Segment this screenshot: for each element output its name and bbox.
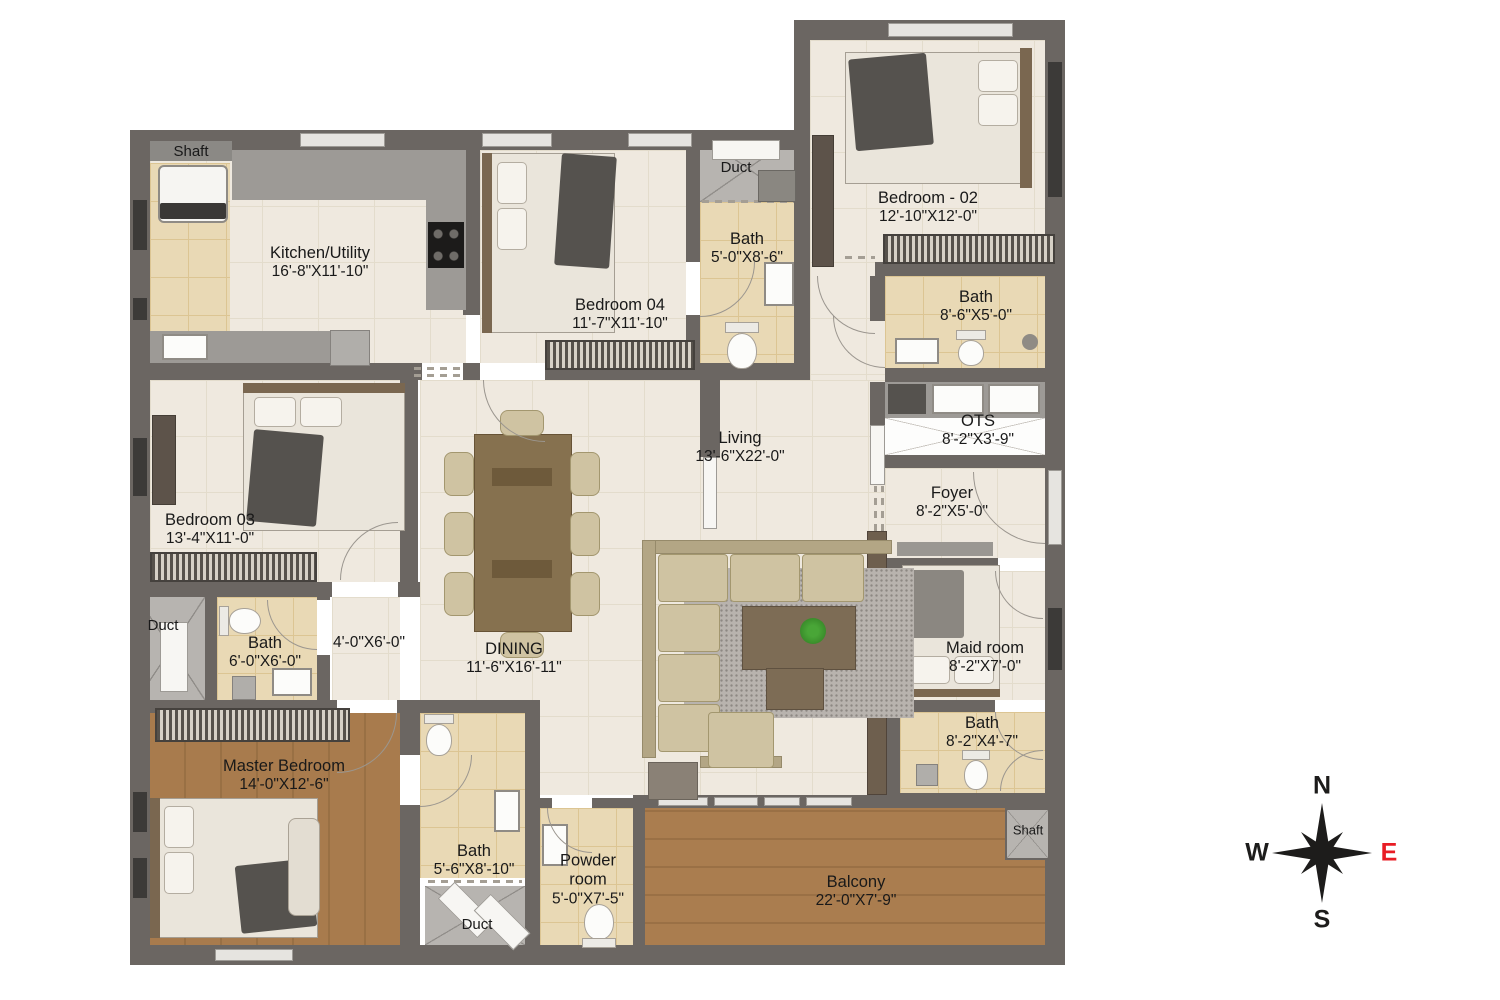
window bbox=[482, 133, 552, 147]
water-heater-band bbox=[160, 203, 226, 219]
window bbox=[215, 949, 293, 961]
pillow bbox=[910, 656, 950, 684]
room-label-shaft-balcony: Shaft bbox=[1013, 822, 1043, 837]
blanket bbox=[554, 153, 617, 269]
toilet-icon bbox=[229, 608, 261, 634]
duct-shelf bbox=[712, 140, 780, 160]
sofa-cushion bbox=[730, 554, 800, 602]
toilet-icon bbox=[584, 904, 614, 940]
dining-chair bbox=[444, 452, 474, 496]
window bbox=[300, 133, 385, 147]
window bbox=[133, 858, 147, 898]
room-label-bath-master: Bath5'-6"X8'-10" bbox=[434, 842, 515, 880]
room-label-living: Living13'-6"X22'-0" bbox=[695, 429, 784, 467]
sofa-cushion bbox=[658, 554, 728, 602]
dining-runner bbox=[492, 560, 552, 578]
wall-outer-top-left bbox=[130, 130, 810, 150]
dining-chair bbox=[444, 512, 474, 556]
window bbox=[714, 797, 758, 806]
tv-console-bedroom-03 bbox=[152, 415, 176, 505]
window bbox=[888, 23, 1013, 37]
window bbox=[133, 200, 147, 250]
toilet-icon bbox=[964, 760, 988, 790]
wardrobe-bedroom-02 bbox=[883, 234, 1055, 264]
room-label-shaft-top: Shaft bbox=[173, 143, 208, 161]
duct-dark-box bbox=[758, 170, 796, 202]
plant-icon bbox=[800, 618, 826, 644]
room-label-foyer: Foyer8'-2"X5'-0" bbox=[916, 484, 988, 522]
room-label-kitchen: Kitchen/Utility16'-8"X11'-10" bbox=[270, 244, 370, 282]
room-label-bath-top: Bath5'-0"X8'-6" bbox=[711, 230, 783, 268]
room-label-passage: 4'-0"X6'-0" bbox=[333, 634, 405, 652]
toilet-icon bbox=[426, 724, 452, 756]
headboard bbox=[482, 153, 492, 333]
room-label-bath-6x6: Bath6'-0"X6'-0" bbox=[229, 634, 301, 672]
blanket bbox=[848, 53, 934, 151]
shower-tray bbox=[272, 668, 312, 696]
sofa-cushion bbox=[802, 554, 864, 602]
headboard bbox=[902, 689, 1000, 697]
headboard bbox=[150, 798, 160, 938]
room-label-bedroom-04: Bedroom 0411'-7"X11'-10" bbox=[572, 296, 668, 334]
ots-dark-box bbox=[888, 384, 926, 414]
pillow bbox=[300, 397, 342, 427]
sofa-back-left bbox=[642, 540, 656, 758]
coffee-table-ext bbox=[766, 668, 824, 710]
toilet-tank bbox=[424, 714, 454, 724]
dining-chair bbox=[570, 452, 600, 496]
vanity bbox=[895, 338, 939, 364]
opening-kitchen-dining bbox=[414, 367, 462, 370]
sofa-cushion bbox=[658, 604, 720, 652]
compass-west: W bbox=[1245, 839, 1269, 868]
wall-bath-corridor bbox=[794, 150, 810, 380]
wall-bed02-south bbox=[875, 262, 1065, 276]
opening-corridor bbox=[845, 256, 875, 259]
room-label-duct-left: Duct bbox=[148, 617, 179, 635]
window bbox=[1048, 62, 1062, 197]
geyser-icon bbox=[916, 764, 938, 786]
window bbox=[628, 133, 692, 147]
compass-star-icon bbox=[1254, 785, 1390, 921]
wall-bathright-south bbox=[885, 368, 1045, 382]
dining-chair bbox=[570, 572, 600, 616]
fridge-icon bbox=[330, 330, 370, 366]
room-label-duct-top: Duct bbox=[721, 159, 752, 177]
room-label-dining: DINING11'-6"X16'-11" bbox=[466, 640, 562, 678]
wall-bed04-bath-a bbox=[686, 150, 700, 262]
window bbox=[133, 298, 147, 320]
toilet-tank bbox=[582, 938, 616, 948]
window bbox=[133, 792, 147, 832]
foyer-bench bbox=[897, 542, 993, 556]
room-label-bath-right: Bath8'-6"X5'-0" bbox=[940, 288, 1012, 326]
wall-bed04-stub bbox=[463, 363, 480, 380]
hob-icon bbox=[428, 222, 464, 268]
sliding-panel bbox=[703, 457, 717, 529]
compass: N W E S bbox=[1240, 760, 1410, 945]
room-label-maid-room: Maid room8'-2"X7'-0" bbox=[946, 639, 1024, 677]
kitchen-sink-icon bbox=[162, 334, 208, 360]
room-label-duct-bottom: Duct bbox=[462, 916, 493, 934]
wall-powder-balcony bbox=[633, 798, 645, 945]
opening-bathmaster-duct bbox=[428, 880, 522, 883]
wall-duct-bath bbox=[205, 597, 217, 700]
coffee-table bbox=[742, 606, 856, 670]
window bbox=[764, 797, 800, 806]
wardrobe-bedroom-04 bbox=[545, 340, 695, 370]
floor-plan: Shaft Kitchen/Utility16'-8"X11'-10" Bedr… bbox=[0, 0, 1500, 1000]
dining-chair bbox=[570, 512, 600, 556]
room-label-ots: OTS8'-2"X3'-9" bbox=[942, 412, 1014, 450]
wall-bath6x6-east-b bbox=[317, 655, 330, 700]
wall-master-east-a bbox=[400, 700, 420, 755]
room-label-bedroom-03: Bedroom 0313'-4"X11'-0" bbox=[165, 511, 255, 549]
wall-powder-north-b bbox=[592, 798, 633, 808]
washer-icon bbox=[988, 384, 1040, 414]
side-table bbox=[648, 762, 698, 800]
wall-bath6x6-east-a bbox=[317, 585, 330, 600]
pillow bbox=[254, 397, 296, 427]
toilet-icon bbox=[727, 333, 757, 369]
wardrobe-master bbox=[155, 708, 350, 742]
sofa-cushion bbox=[658, 654, 720, 702]
geyser-icon bbox=[232, 676, 256, 700]
opening-kitchen-dining bbox=[414, 374, 462, 377]
wall-master-east-b bbox=[400, 805, 420, 945]
room-label-bedroom-02: Bedroom - 0212'-10"X12'-0" bbox=[878, 189, 978, 227]
wall-kitchen-south bbox=[130, 363, 422, 380]
compass-south: S bbox=[1314, 906, 1331, 935]
blanket bbox=[246, 429, 324, 527]
headboard bbox=[243, 383, 405, 393]
shower-icon bbox=[1022, 334, 1038, 350]
room-label-powder: Powder room5'-0"X7'-5" bbox=[544, 851, 632, 908]
toilet-tank bbox=[219, 606, 229, 636]
blanket bbox=[906, 570, 964, 638]
wall-outer-left bbox=[130, 130, 150, 965]
wardrobe-bedroom-03 bbox=[150, 552, 317, 582]
vanity bbox=[494, 790, 520, 832]
pillow bbox=[164, 852, 194, 894]
room-label-balcony: Balcony22'-0"X7'-9" bbox=[816, 873, 897, 911]
window bbox=[1048, 608, 1062, 670]
toilet-icon bbox=[958, 340, 984, 366]
bench-master bbox=[288, 818, 320, 916]
vanity bbox=[764, 262, 794, 306]
room-label-bath-maid: Bath8'-2"X4'-7" bbox=[946, 714, 1018, 752]
window bbox=[133, 438, 147, 496]
dining-runner bbox=[492, 468, 552, 486]
compass-east: E bbox=[1381, 839, 1398, 868]
toilet-tank bbox=[956, 330, 986, 340]
compass-north: N bbox=[1313, 772, 1331, 801]
wall-bed03-corner bbox=[398, 582, 420, 597]
room-label-master: Master Bedroom14'-0"X12'-6" bbox=[223, 757, 345, 795]
dining-table bbox=[474, 434, 572, 632]
pillow bbox=[497, 208, 527, 250]
headboard bbox=[1020, 48, 1032, 188]
pillow bbox=[497, 162, 527, 204]
wall-bed03-south bbox=[130, 582, 332, 597]
sofa-back-top bbox=[642, 540, 892, 554]
wall-living-ots bbox=[870, 382, 885, 425]
main-entrance-gap bbox=[1048, 470, 1062, 545]
pillow bbox=[978, 60, 1018, 92]
window bbox=[806, 797, 852, 806]
storage-bedroom-02 bbox=[812, 135, 834, 267]
pillow bbox=[978, 94, 1018, 126]
dining-chair bbox=[444, 572, 474, 616]
toilet-tank bbox=[725, 322, 759, 333]
wall-ots-south bbox=[878, 455, 1065, 468]
wall-bathmaster-powder bbox=[525, 700, 540, 945]
pillow bbox=[164, 806, 194, 848]
sliding-panel bbox=[870, 425, 885, 485]
armchair-cushion bbox=[708, 712, 774, 768]
washer-icon bbox=[932, 384, 984, 414]
